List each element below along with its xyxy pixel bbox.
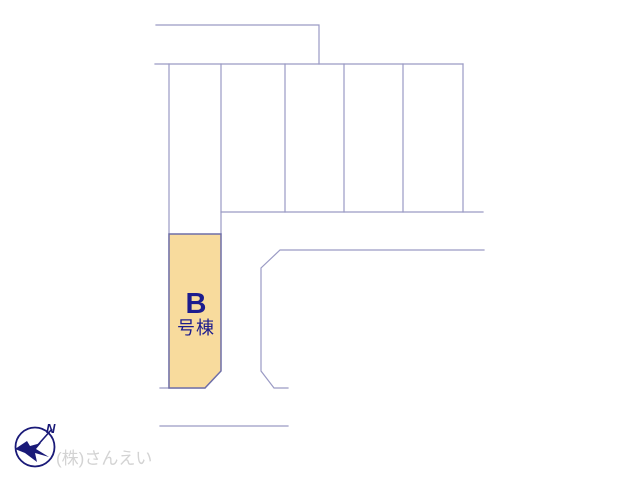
plot-b-letter: B (186, 288, 207, 320)
site-plan: B 号棟 N (株)さんえい (0, 0, 640, 480)
compass-north-label: N (46, 421, 56, 436)
site-plan-svg: B 号棟 N (株)さんえい (0, 0, 640, 480)
upper-boundary-line (156, 25, 319, 64)
company-name: (株)さんえい (56, 449, 152, 468)
road-outline (261, 250, 484, 388)
plot-b-suffix: 号棟 (177, 318, 215, 338)
compass-icon: N (15, 421, 56, 467)
